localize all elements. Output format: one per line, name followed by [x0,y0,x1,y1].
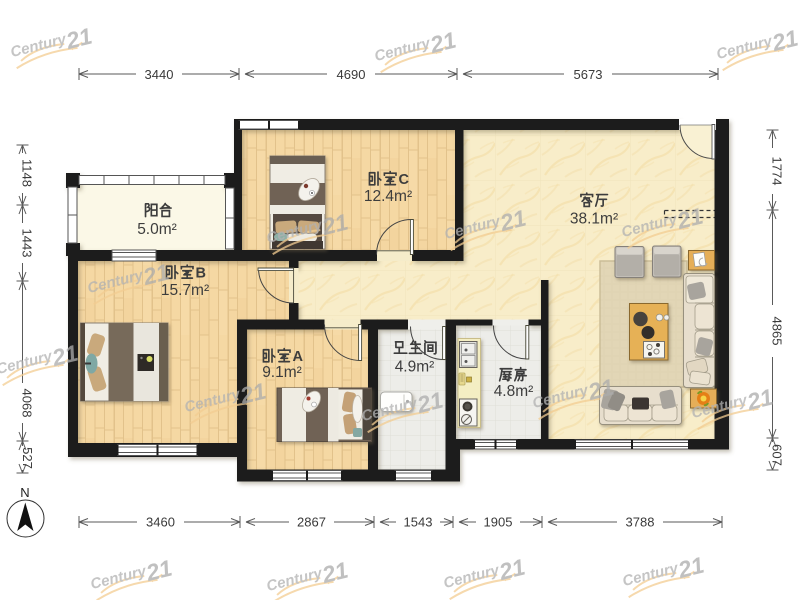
svg-text:1148: 1148 [20,159,35,187]
svg-text:607: 607 [770,444,785,466]
svg-text:38.1m²: 38.1m² [570,211,618,228]
svg-text:2867: 2867 [297,515,326,530]
svg-text:5673: 5673 [574,67,603,82]
svg-text:1443: 1443 [20,229,35,258]
svg-text:4.8m²: 4.8m² [494,383,534,400]
svg-text:9.1m²: 9.1m² [262,364,302,381]
svg-text:3460: 3460 [146,515,175,530]
svg-text:4.9m²: 4.9m² [395,359,435,376]
svg-text:4690: 4690 [337,67,366,82]
svg-text:4865: 4865 [770,317,785,346]
svg-text:B: B [196,266,206,282]
svg-text:12.4m²: 12.4m² [364,188,412,205]
svg-text:1543: 1543 [404,515,433,530]
svg-text:1774: 1774 [770,157,785,186]
svg-text:3440: 3440 [145,67,174,82]
svg-text:4068: 4068 [20,389,35,418]
svg-text:1905: 1905 [484,515,513,530]
svg-text:N: N [20,485,29,500]
svg-text:5.0m²: 5.0m² [137,221,177,238]
svg-text:A: A [293,349,304,365]
svg-text:C: C [399,172,410,188]
svg-text:3788: 3788 [626,515,655,530]
svg-text:527: 527 [20,447,35,469]
